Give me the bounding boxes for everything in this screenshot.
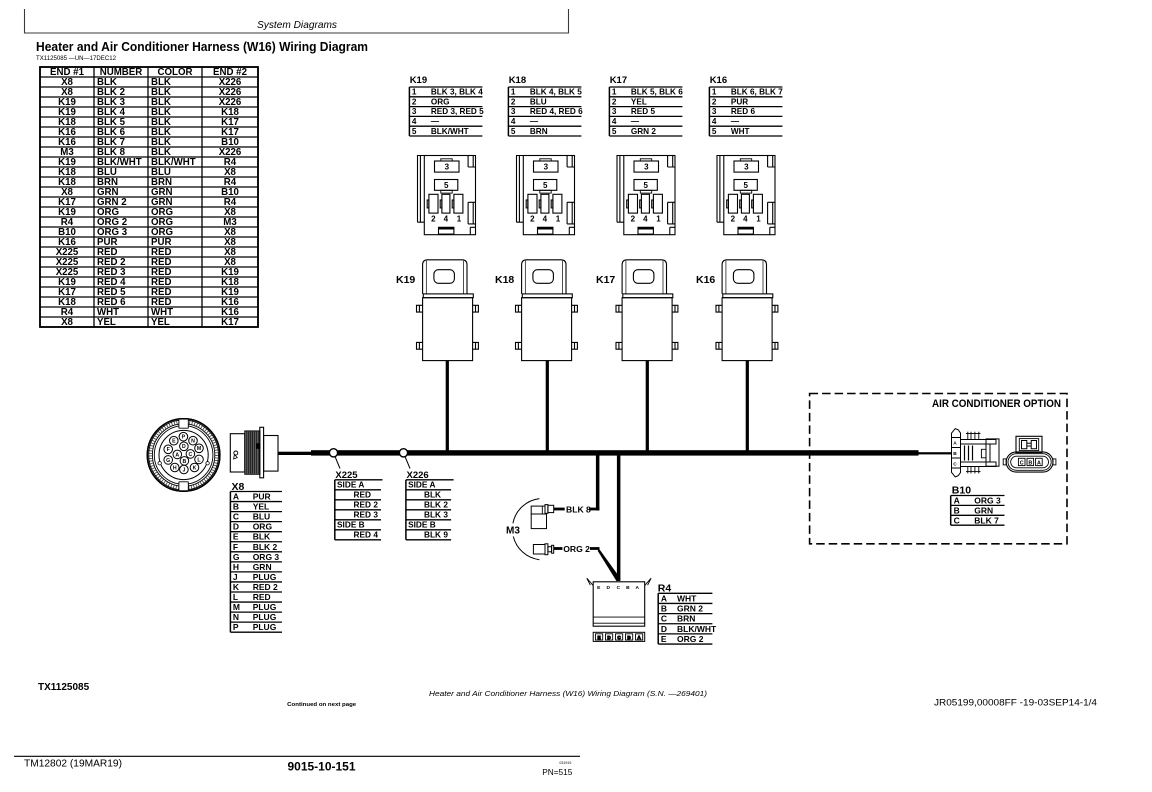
svg-text:RED: RED	[253, 592, 271, 602]
svg-text:5: 5	[612, 127, 617, 136]
svg-text:SIDE B: SIDE B	[337, 520, 365, 530]
svg-text:PLUG: PLUG	[253, 622, 277, 632]
svg-text:031919: 031919	[559, 761, 571, 765]
svg-text:D: D	[661, 624, 667, 634]
svg-text:BLK/WHT: BLK/WHT	[677, 624, 717, 634]
svg-text:PLUG: PLUG	[253, 602, 277, 612]
svg-text:3: 3	[445, 162, 450, 171]
svg-text:4: 4	[444, 214, 449, 223]
svg-text:ORG 2: ORG 2	[563, 544, 590, 554]
svg-text:WHT: WHT	[677, 593, 697, 603]
svg-text:JR05199,00008FF -19-03SEP14-1/: JR05199,00008FF -19-03SEP14-1/4	[934, 698, 1097, 708]
svg-text:4: 4	[543, 214, 548, 223]
svg-text:BLK 2: BLK 2	[253, 542, 278, 552]
svg-text:J: J	[182, 467, 185, 473]
svg-text:PN=515: PN=515	[542, 767, 573, 777]
svg-text:—: —	[731, 117, 740, 126]
svg-text:K18: K18	[495, 274, 514, 286]
svg-text:4: 4	[643, 214, 648, 223]
svg-text:B: B	[661, 604, 667, 614]
svg-text:K19: K19	[410, 75, 427, 86]
svg-text:K18: K18	[509, 75, 526, 86]
svg-text:BLK: BLK	[424, 490, 441, 500]
svg-text:BLK 3, BLK 4: BLK 3, BLK 4	[431, 88, 483, 97]
svg-text:BLK 3: BLK 3	[424, 510, 448, 520]
svg-text:BLU: BLU	[530, 97, 547, 106]
svg-text:D: D	[606, 585, 610, 591]
svg-text:Heater and Air Conditioner Har: Heater and Air Conditioner Harness (W16)…	[36, 39, 368, 54]
svg-text:BLK 7: BLK 7	[974, 515, 999, 525]
svg-text:3: 3	[412, 107, 417, 116]
svg-text:BRN: BRN	[677, 614, 695, 624]
svg-text:5: 5	[712, 127, 717, 136]
svg-text:1: 1	[556, 214, 561, 223]
svg-text:Heater and Air Conditioner Har: Heater and Air Conditioner Harness (W16)…	[429, 689, 707, 698]
svg-text:N: N	[233, 612, 239, 622]
svg-text:3: 3	[712, 107, 717, 116]
svg-text:BLK 4, BLK 5: BLK 4, BLK 5	[530, 88, 582, 97]
svg-text:2: 2	[631, 214, 636, 223]
svg-text:M3: M3	[506, 525, 520, 536]
svg-text:RED 2: RED 2	[253, 582, 278, 592]
svg-text:ORG: ORG	[253, 522, 273, 532]
svg-text:B10: B10	[952, 484, 971, 496]
svg-text:K19: K19	[396, 274, 415, 286]
svg-text:M: M	[233, 602, 240, 612]
svg-text:Continued on next page: Continued on next page	[287, 702, 357, 708]
svg-text:RED 6: RED 6	[731, 107, 756, 116]
svg-text:BLK 6, BLK 7: BLK 6, BLK 7	[731, 88, 783, 97]
svg-text:BLK 5, BLK 6: BLK 5, BLK 6	[631, 88, 683, 97]
svg-text:A: A	[1037, 461, 1041, 467]
svg-text:3: 3	[744, 162, 749, 171]
svg-text:C: C	[1020, 461, 1024, 467]
svg-text:A: A	[953, 441, 957, 447]
svg-text:E: E	[172, 439, 176, 445]
svg-text:B: B	[233, 502, 239, 512]
svg-text:ORG 3: ORG 3	[974, 496, 1001, 506]
svg-text:BLK 2: BLK 2	[424, 500, 448, 510]
svg-text:B: B	[183, 459, 187, 465]
svg-text:TM12802 (19MAR19): TM12802 (19MAR19)	[24, 759, 122, 770]
svg-text:C: C	[189, 452, 193, 458]
svg-text:AIR CONDITIONER OPTION: AIR CONDITIONER OPTION	[932, 398, 1061, 410]
svg-text:K17: K17	[610, 75, 627, 86]
svg-text:PLUG: PLUG	[253, 612, 277, 622]
svg-text:GRN: GRN	[253, 562, 272, 572]
svg-text:BLK/WHT: BLK/WHT	[431, 127, 469, 136]
svg-text:B: B	[953, 451, 957, 457]
svg-text:4: 4	[612, 117, 617, 126]
svg-text:4: 4	[743, 214, 748, 223]
svg-text:E: E	[661, 634, 667, 644]
svg-text:GRN 2: GRN 2	[631, 127, 656, 136]
svg-text:2: 2	[712, 97, 717, 106]
svg-text:C: C	[233, 512, 239, 522]
svg-text:1: 1	[656, 214, 661, 223]
svg-text:ORG 3: ORG 3	[253, 552, 280, 562]
svg-text:C: C	[953, 462, 957, 468]
svg-text:BLK: BLK	[253, 532, 271, 542]
svg-text:1: 1	[712, 88, 717, 97]
svg-text:D: D	[182, 444, 186, 450]
svg-text:GRN: GRN	[974, 505, 993, 515]
svg-text:BLU: BLU	[253, 512, 270, 522]
svg-text:H: H	[233, 562, 239, 572]
svg-text:PUR: PUR	[253, 492, 271, 502]
svg-text:G: G	[166, 458, 170, 464]
svg-text:D: D	[233, 522, 239, 532]
svg-text:E: E	[598, 635, 601, 640]
svg-text:4: 4	[412, 117, 417, 126]
svg-text:RED: RED	[354, 490, 372, 500]
svg-text:BLK 8: BLK 8	[566, 504, 591, 514]
svg-text:YEL: YEL	[631, 97, 647, 106]
svg-text:2: 2	[612, 97, 617, 106]
svg-text:2: 2	[431, 214, 436, 223]
svg-text:2: 2	[731, 214, 736, 223]
svg-text:4: 4	[712, 117, 717, 126]
svg-text:G: G	[233, 552, 240, 562]
svg-text:1: 1	[457, 214, 462, 223]
svg-text:P: P	[182, 435, 186, 441]
svg-text:5: 5	[743, 181, 748, 190]
svg-text:C: C	[617, 585, 621, 591]
svg-text:3: 3	[511, 107, 516, 116]
svg-text:PUR: PUR	[731, 97, 748, 106]
svg-text:1: 1	[412, 88, 417, 97]
svg-text:N: N	[191, 439, 195, 445]
svg-text:SIDE A: SIDE A	[337, 480, 364, 490]
svg-text:F: F	[233, 542, 238, 552]
svg-text:3: 3	[544, 162, 549, 171]
svg-text:X8: X8	[61, 317, 73, 328]
svg-text:A: A	[233, 492, 239, 502]
svg-text:BLK 9: BLK 9	[424, 530, 448, 540]
svg-text:P: P	[233, 622, 239, 632]
svg-text:RED 4, RED 6: RED 4, RED 6	[530, 107, 583, 116]
svg-text:2: 2	[412, 97, 417, 106]
svg-text:—: —	[431, 117, 440, 126]
svg-text:F: F	[167, 447, 170, 453]
svg-text:M: M	[197, 446, 201, 452]
svg-text:K16: K16	[710, 75, 727, 86]
svg-text:3: 3	[612, 107, 617, 116]
svg-text:5: 5	[412, 127, 417, 136]
svg-text:L: L	[233, 592, 238, 602]
svg-text:J: J	[233, 572, 238, 582]
svg-text:K17: K17	[596, 274, 615, 286]
svg-text:SIDE A: SIDE A	[408, 480, 435, 490]
svg-text:RED 4: RED 4	[354, 530, 379, 540]
svg-text:RED 5: RED 5	[631, 107, 656, 116]
svg-text:C: C	[661, 614, 667, 624]
svg-text:RED 3, RED 5: RED 3, RED 5	[431, 107, 484, 116]
svg-text:K17: K17	[221, 317, 239, 328]
svg-text:System Diagrams: System Diagrams	[257, 19, 338, 31]
svg-text:PLUG: PLUG	[253, 572, 277, 582]
svg-text:5: 5	[511, 127, 516, 136]
svg-text:K: K	[193, 465, 197, 471]
svg-text:2: 2	[530, 214, 535, 223]
svg-text:5: 5	[643, 181, 648, 190]
svg-text:B: B	[954, 505, 960, 515]
svg-text:A: A	[635, 585, 639, 591]
svg-text:5: 5	[543, 181, 548, 190]
svg-text:A: A	[954, 496, 960, 506]
svg-text:TX1125085: TX1125085	[38, 682, 90, 693]
svg-text:A: A	[661, 593, 667, 603]
svg-text:YEL: YEL	[253, 502, 270, 512]
svg-text:K16: K16	[696, 274, 715, 286]
svg-text:1: 1	[612, 88, 617, 97]
svg-text:3: 3	[644, 162, 649, 171]
svg-text:9015-10-151: 9015-10-151	[288, 760, 356, 774]
svg-text:RED 2: RED 2	[354, 500, 379, 510]
svg-text:—: —	[530, 117, 539, 126]
svg-text:ORG: ORG	[431, 97, 450, 106]
svg-text:C: C	[954, 515, 960, 525]
svg-text:B: B	[626, 585, 630, 591]
svg-text:YEL: YEL	[97, 317, 116, 328]
svg-text:H: H	[173, 465, 177, 471]
svg-text:BRN: BRN	[530, 127, 548, 136]
svg-text:A: A	[175, 452, 179, 458]
svg-text:4: 4	[511, 117, 516, 126]
svg-text:RED 3: RED 3	[354, 510, 379, 520]
svg-text:2: 2	[511, 97, 516, 106]
svg-text:YEL: YEL	[151, 317, 170, 328]
svg-text:SIDE B: SIDE B	[408, 520, 436, 530]
svg-text:5: 5	[444, 181, 449, 190]
svg-text:1: 1	[756, 214, 761, 223]
svg-text:E: E	[233, 532, 239, 542]
svg-text:WHT: WHT	[731, 127, 750, 136]
svg-text:B: B	[1028, 461, 1032, 467]
svg-text:ORG 2: ORG 2	[677, 634, 704, 644]
svg-text:GRN 2: GRN 2	[677, 604, 703, 614]
svg-text:TX1125085 —UN—17DEC12: TX1125085 —UN—17DEC12	[36, 55, 116, 62]
svg-text:K: K	[233, 582, 240, 592]
svg-text:—: —	[631, 117, 640, 126]
svg-text:1: 1	[511, 88, 516, 97]
